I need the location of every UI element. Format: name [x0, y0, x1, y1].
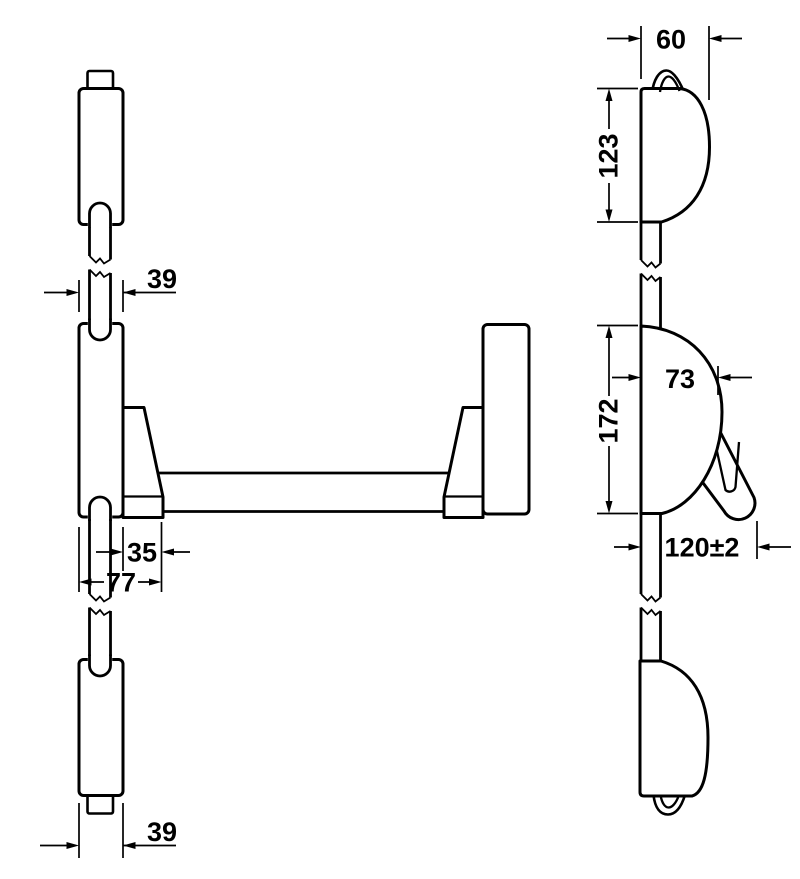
dimension-73: 73	[612, 364, 752, 395]
bottom-latch-case-side	[640, 661, 708, 796]
dim-label-120: 120±2	[665, 533, 740, 563]
dim-label-123: 123	[594, 133, 624, 178]
panic-exit-device-drawing: 39 35 77 39	[0, 0, 800, 879]
dim-label-39-top: 39	[147, 264, 177, 294]
bar-bracket-right	[444, 408, 483, 518]
dimension-120: 120±2	[614, 521, 791, 563]
dimension-172: 172	[594, 326, 639, 514]
break-symbol	[90, 608, 111, 616]
top-latch-case-side	[641, 89, 710, 223]
dim-label-35: 35	[127, 538, 157, 568]
dim-label-73: 73	[665, 364, 695, 394]
break-symbol	[641, 594, 661, 602]
break-symbol	[641, 274, 661, 282]
dim-label-39-bottom: 39	[147, 817, 177, 847]
break-symbol	[641, 608, 661, 616]
dim-label-172: 172	[594, 398, 624, 443]
lock-case-front	[483, 325, 529, 515]
technical-drawing-canvas: 39 35 77 39	[0, 0, 800, 879]
dim-label-60: 60	[656, 25, 686, 55]
center-rod-guide	[79, 324, 123, 518]
break-symbol	[90, 256, 111, 264]
front-view	[79, 71, 529, 814]
bottom-bolt	[88, 795, 114, 814]
bottom-rod-housing	[79, 660, 123, 796]
break-symbol	[90, 270, 111, 278]
push-bar	[158, 473, 450, 512]
break-symbol	[641, 260, 661, 268]
bar-bracket-left	[123, 408, 163, 518]
bottom-latch-bolt-side	[654, 795, 686, 815]
dimension-123: 123	[594, 89, 639, 223]
dim-label-77: 77	[106, 568, 136, 598]
side-view	[640, 71, 755, 815]
